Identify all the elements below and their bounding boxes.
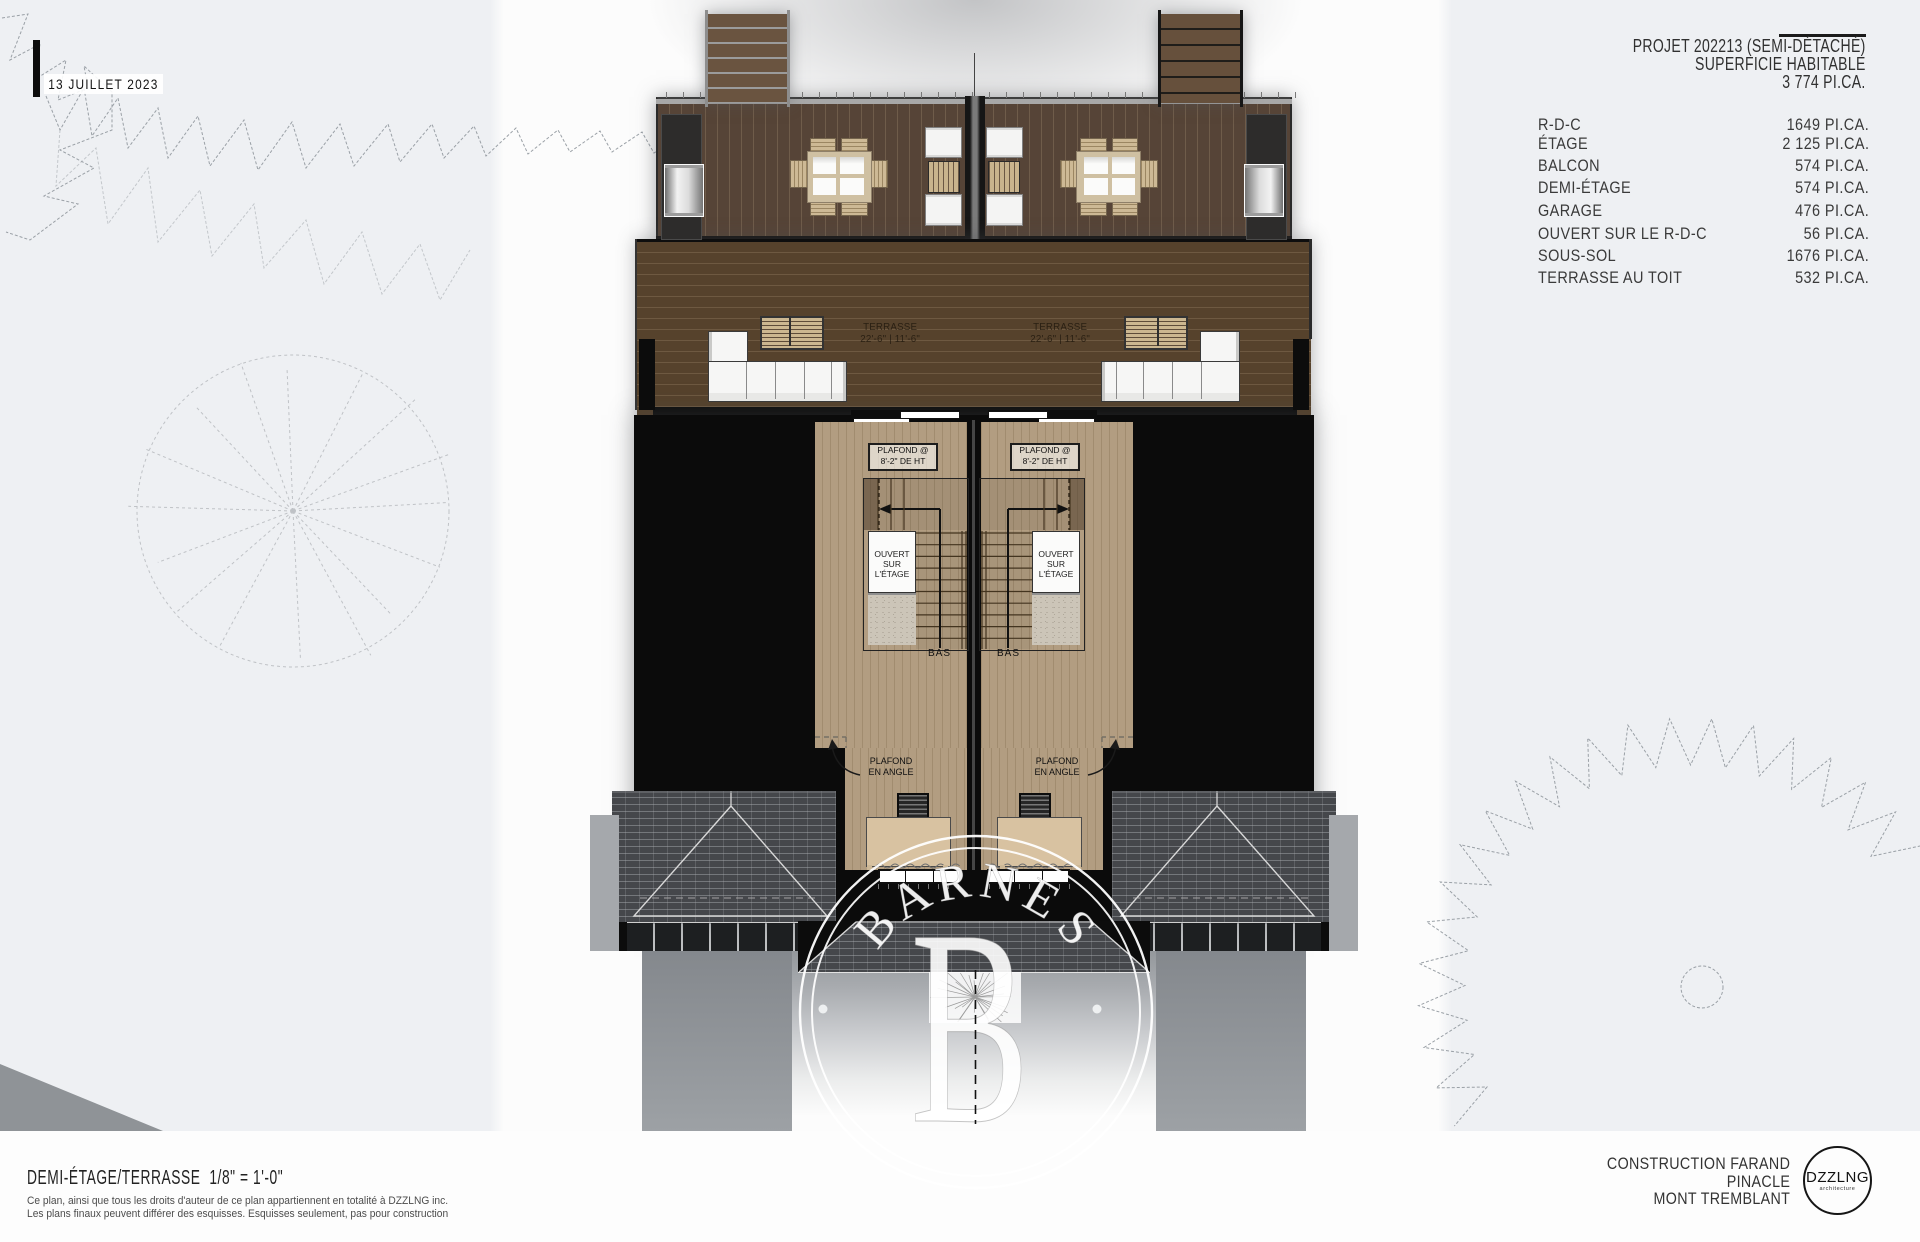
svg-text:B: B (910, 872, 1030, 1182)
svg-text:S: S (1047, 899, 1108, 956)
